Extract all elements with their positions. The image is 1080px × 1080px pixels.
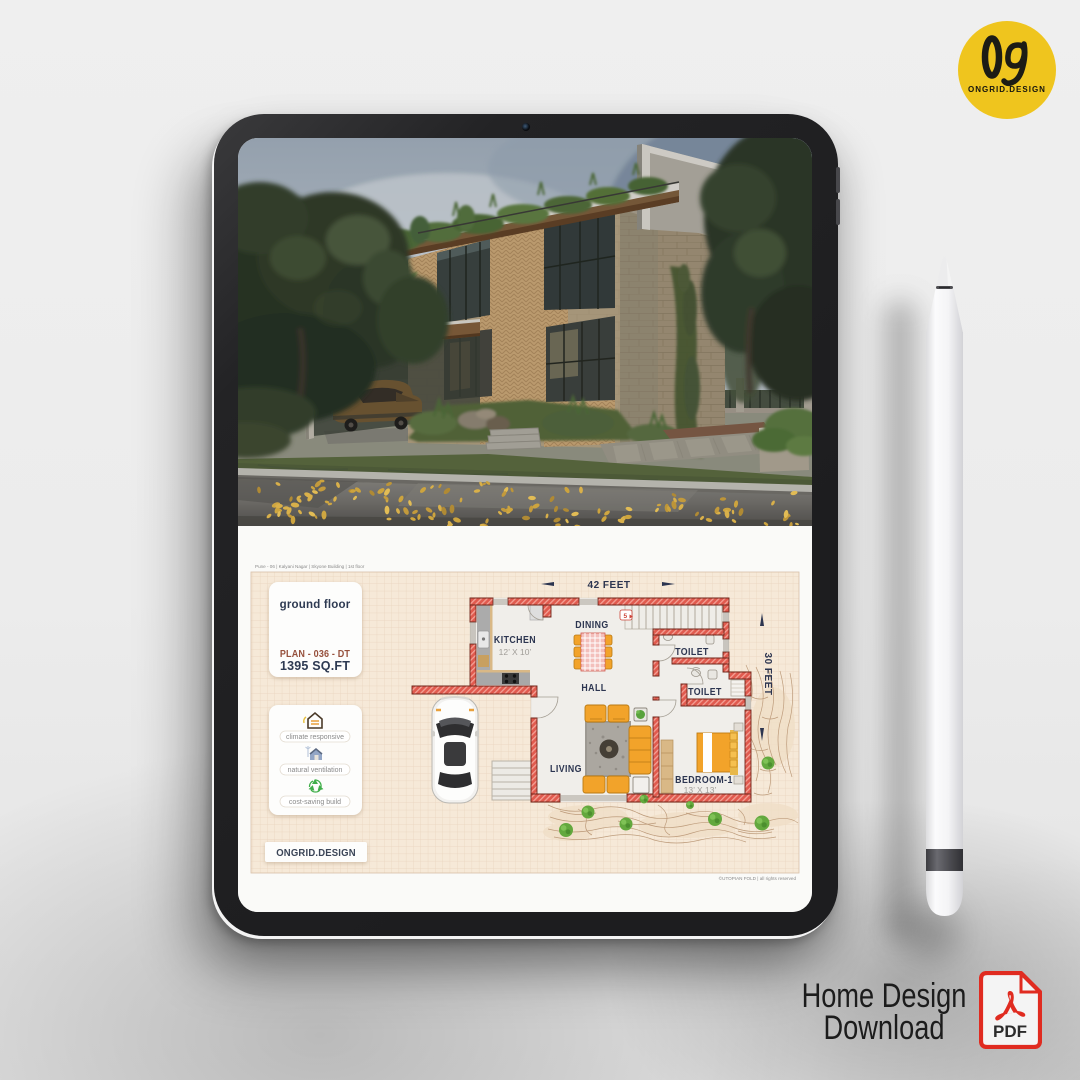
svg-text:climate responsive: climate responsive (286, 734, 344, 741)
svg-text:natural ventilation: natural ventilation (288, 767, 343, 774)
svg-text:cost-saving build: cost-saving build (289, 799, 341, 806)
svg-text:TOILET: TOILET (688, 685, 722, 697)
svg-text:13’ X 13’: 13’ X 13’ (684, 785, 717, 795)
svg-text:5: 5 (624, 613, 628, 620)
svg-text:©UTOPIAN FOLD | all rights res: ©UTOPIAN FOLD | all rights reserved (719, 875, 797, 881)
svg-text:LIVING: LIVING (550, 762, 582, 774)
svg-text:HALL: HALL (581, 681, 606, 693)
svg-text:ONGRID.DESIGN: ONGRID.DESIGN (968, 85, 1046, 94)
svg-text:30 FEET: 30 FEET (762, 653, 773, 696)
svg-text:ONGRID.DESIGN: ONGRID.DESIGN (276, 848, 356, 859)
svg-text:BEDROOM-1: BEDROOM-1 (675, 773, 733, 785)
svg-text:PDF: PDF (993, 1022, 1027, 1041)
svg-text:1395 SQ.FT: 1395 SQ.FT (280, 659, 350, 673)
svg-text:DINING: DINING (575, 618, 608, 630)
svg-text:12’ X 10’: 12’ X 10’ (499, 647, 532, 657)
svg-text:TOILET: TOILET (675, 645, 709, 657)
svg-text:ground floor: ground floor (280, 599, 351, 611)
svg-text:KITCHEN: KITCHEN (494, 633, 536, 645)
svg-text:Pune - 06 | Kalyani Nagar | Sk: Pune - 06 | Kalyani Nagar | Skyone Build… (255, 564, 365, 569)
svg-text:42 FEET: 42 FEET (588, 580, 631, 591)
